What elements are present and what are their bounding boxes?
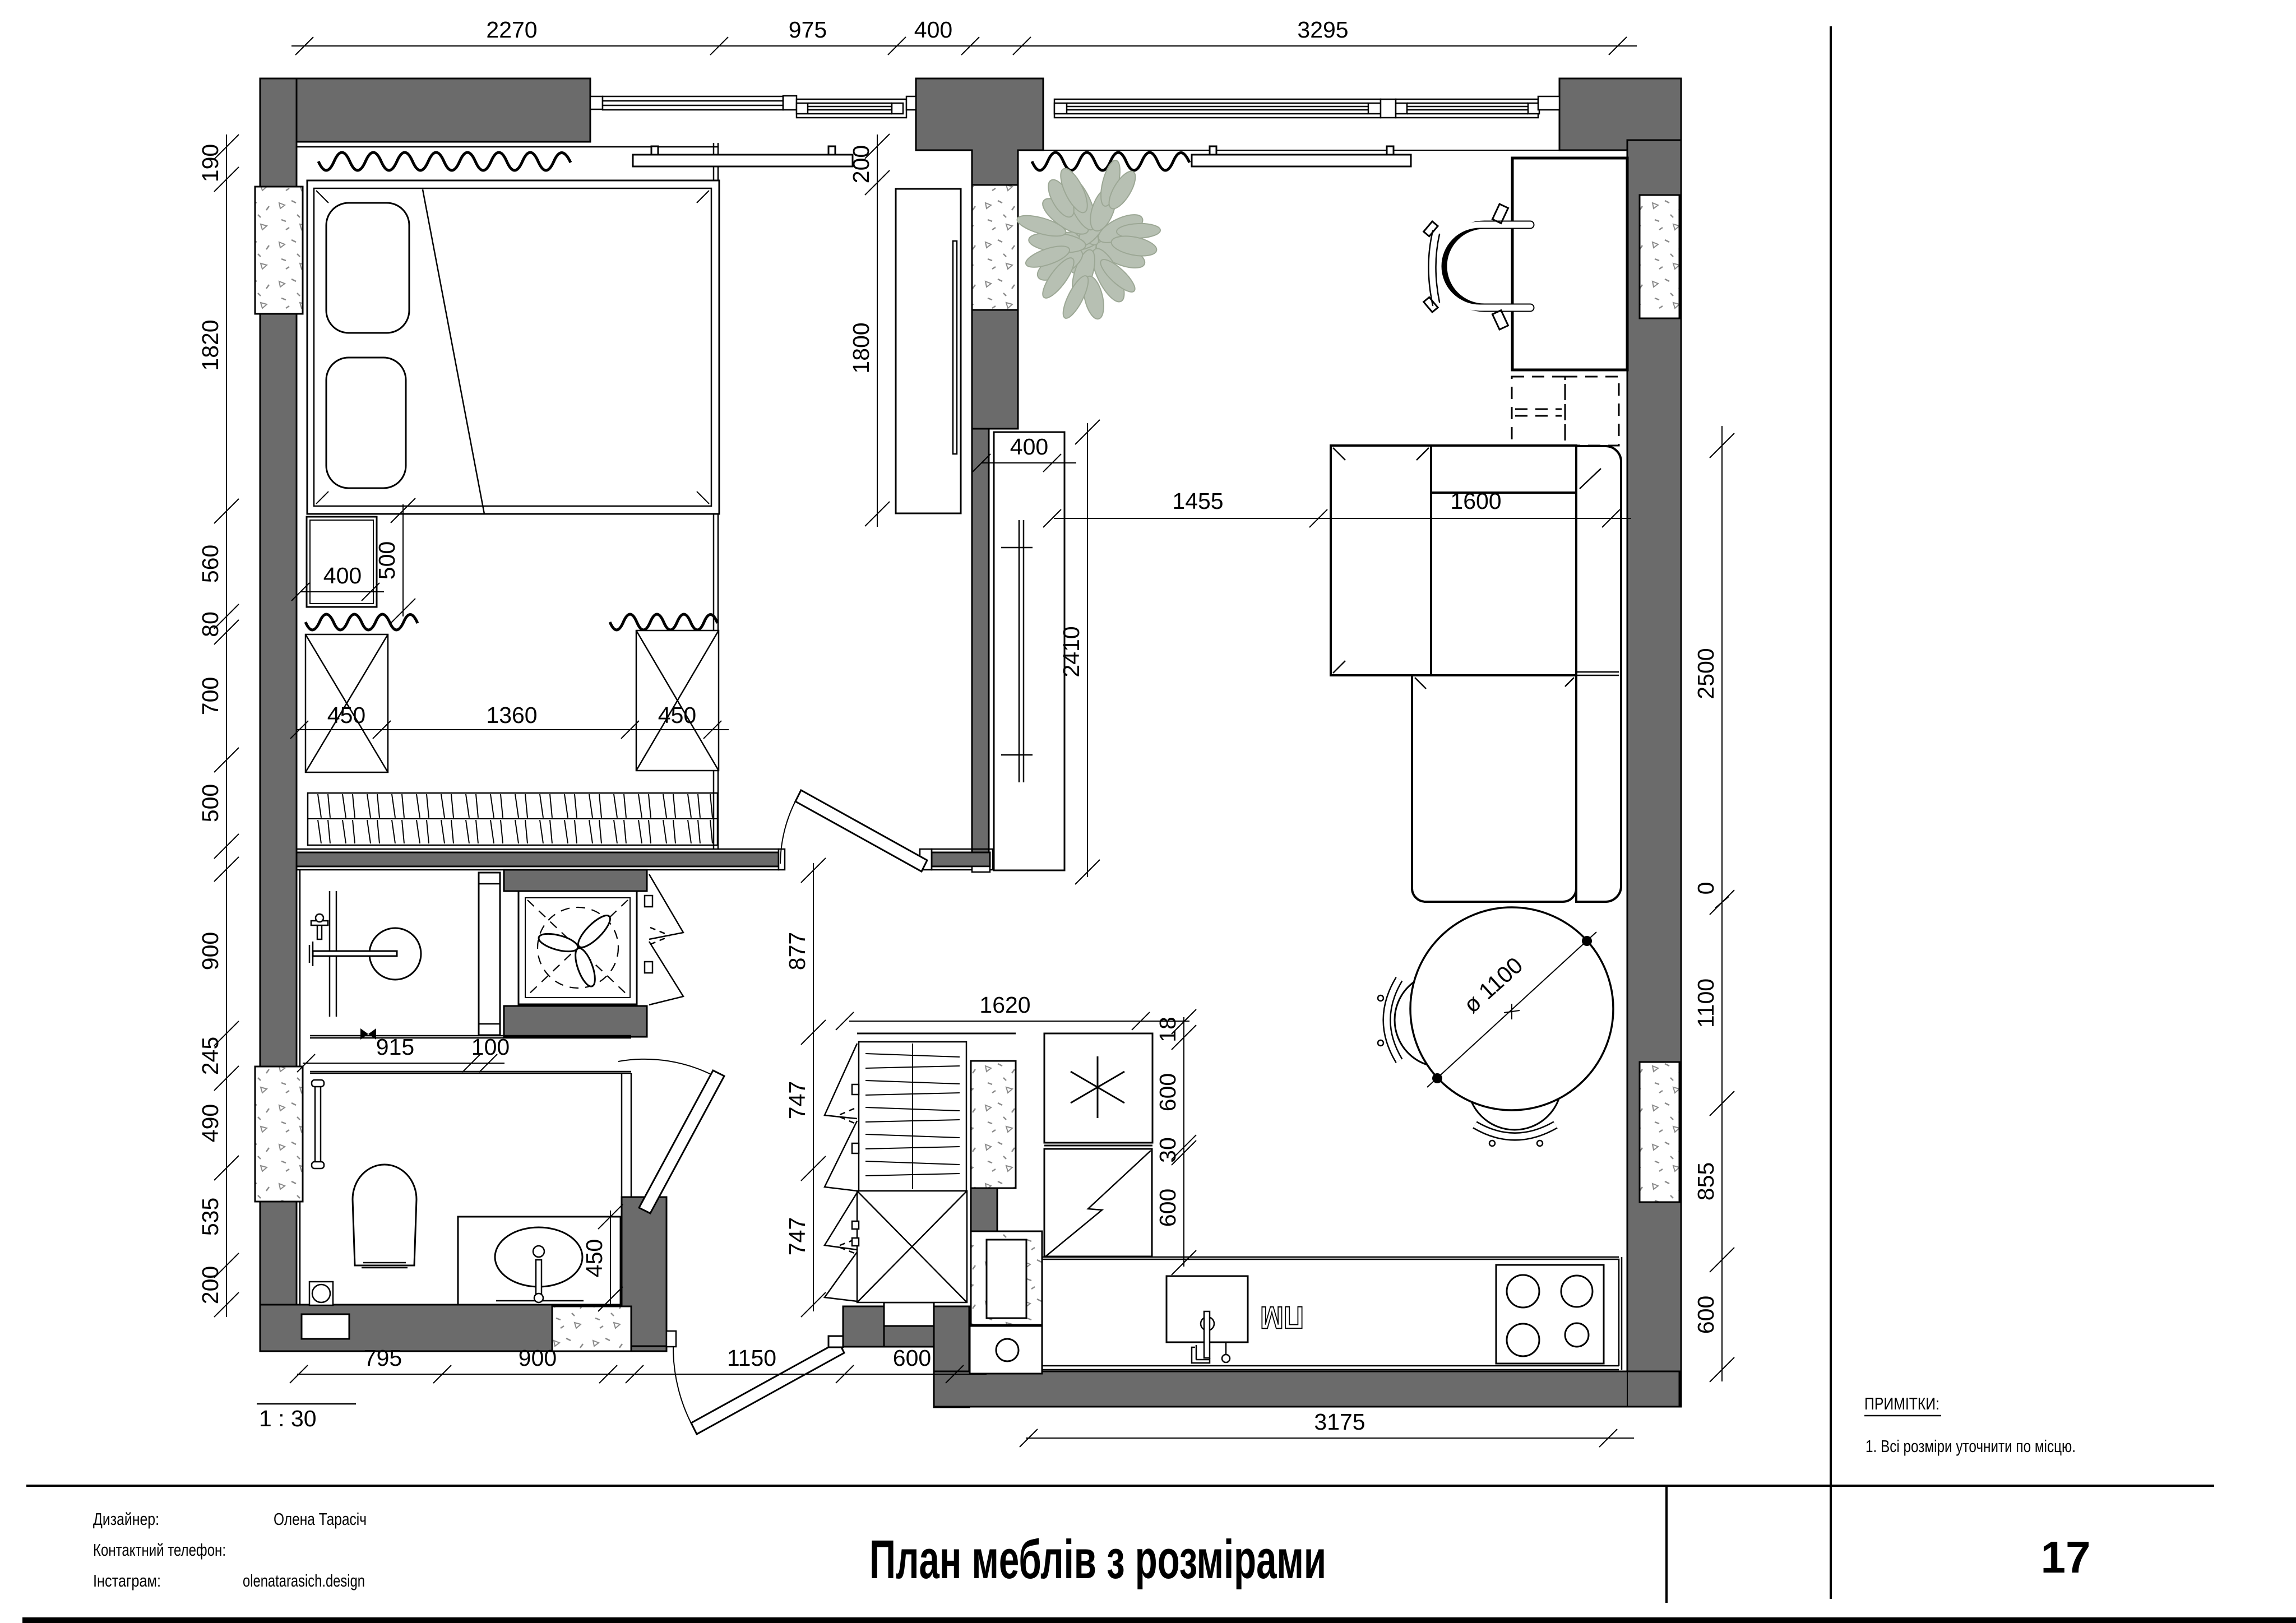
svg-text:245: 245 — [197, 1037, 223, 1075]
svg-text:Дизайнер:: Дизайнер: — [93, 1509, 159, 1529]
svg-text:900: 900 — [519, 1345, 557, 1371]
svg-text:450: 450 — [581, 1239, 607, 1277]
svg-text:1600: 1600 — [1450, 488, 1501, 514]
svg-text:1820: 1820 — [197, 319, 223, 370]
svg-text:2270: 2270 — [486, 17, 537, 43]
svg-text:1150: 1150 — [727, 1345, 776, 1371]
svg-text:ПРИМІТКИ:: ПРИМІТКИ: — [1864, 1394, 1939, 1413]
svg-text:1620: 1620 — [979, 992, 1030, 1018]
svg-text:600: 600 — [1155, 1073, 1181, 1111]
svg-text:600: 600 — [1693, 1296, 1719, 1334]
svg-text:Інстаграм:: Інстаграм: — [93, 1571, 161, 1590]
svg-text:200: 200 — [197, 1266, 223, 1304]
svg-text:600: 600 — [893, 1345, 931, 1371]
svg-text:795: 795 — [364, 1345, 402, 1371]
svg-text:1 : 30: 1 : 30 — [259, 1406, 317, 1431]
svg-text:855: 855 — [1693, 1162, 1719, 1200]
svg-text:3175: 3175 — [1314, 1409, 1365, 1435]
svg-text:1360: 1360 — [486, 702, 537, 728]
svg-text:500: 500 — [197, 784, 223, 822]
svg-text:80: 80 — [197, 611, 223, 637]
svg-text:1455: 1455 — [1172, 488, 1223, 514]
svg-text:3295: 3295 — [1297, 17, 1348, 43]
svg-text:560: 560 — [197, 545, 223, 583]
svg-text:0: 0 — [1693, 882, 1719, 895]
svg-text:900: 900 — [197, 932, 223, 970]
svg-text:ПМ: ПМ — [1260, 1300, 1304, 1336]
svg-text:30: 30 — [1155, 1137, 1181, 1163]
svg-text:100: 100 — [471, 1034, 510, 1060]
svg-text:Олена Тарасіч: Олена Тарасіч — [274, 1509, 367, 1529]
svg-text:18: 18 — [1155, 1017, 1181, 1042]
svg-text:747: 747 — [784, 1217, 810, 1255]
svg-text:190: 190 — [197, 144, 223, 182]
svg-text:535: 535 — [197, 1198, 223, 1236]
svg-text:olenatarasich.design: olenatarasich.design — [243, 1571, 365, 1590]
svg-text:1800: 1800 — [848, 322, 874, 373]
svg-text:1. Всі розміри уточнити по міс: 1. Всі розміри уточнити по місцю. — [1865, 1436, 2076, 1456]
svg-text:200: 200 — [848, 145, 874, 183]
svg-text:400: 400 — [1010, 434, 1048, 460]
svg-text:700: 700 — [197, 677, 223, 715]
svg-text:450: 450 — [658, 702, 696, 728]
svg-text:450: 450 — [327, 702, 365, 728]
svg-text:План меблів з розмірами: План меблів з розмірами — [869, 1529, 1326, 1590]
svg-text:400: 400 — [914, 17, 952, 43]
svg-text:975: 975 — [789, 17, 827, 43]
svg-text:1100: 1100 — [1693, 979, 1719, 1028]
svg-text:877: 877 — [784, 932, 810, 970]
svg-text:500: 500 — [374, 541, 400, 579]
svg-text:17: 17 — [2041, 1532, 2091, 1582]
svg-text:490: 490 — [197, 1104, 223, 1142]
svg-text:2410: 2410 — [1058, 626, 1084, 677]
svg-text:747: 747 — [784, 1081, 810, 1119]
svg-text:915: 915 — [376, 1034, 414, 1060]
svg-text:400: 400 — [323, 563, 362, 588]
svg-text:2500: 2500 — [1693, 648, 1719, 699]
svg-text:Контактний телефон:: Контактний телефон: — [93, 1540, 226, 1560]
svg-text:600: 600 — [1155, 1189, 1181, 1227]
